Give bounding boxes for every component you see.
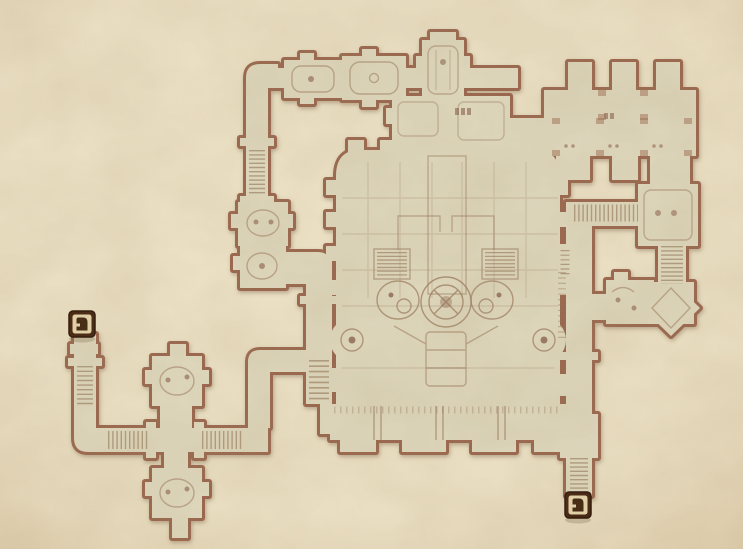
parchment-grain [0,0,743,549]
game-map-screen [0,0,743,549]
map-canvas[interactable] [0,0,743,549]
